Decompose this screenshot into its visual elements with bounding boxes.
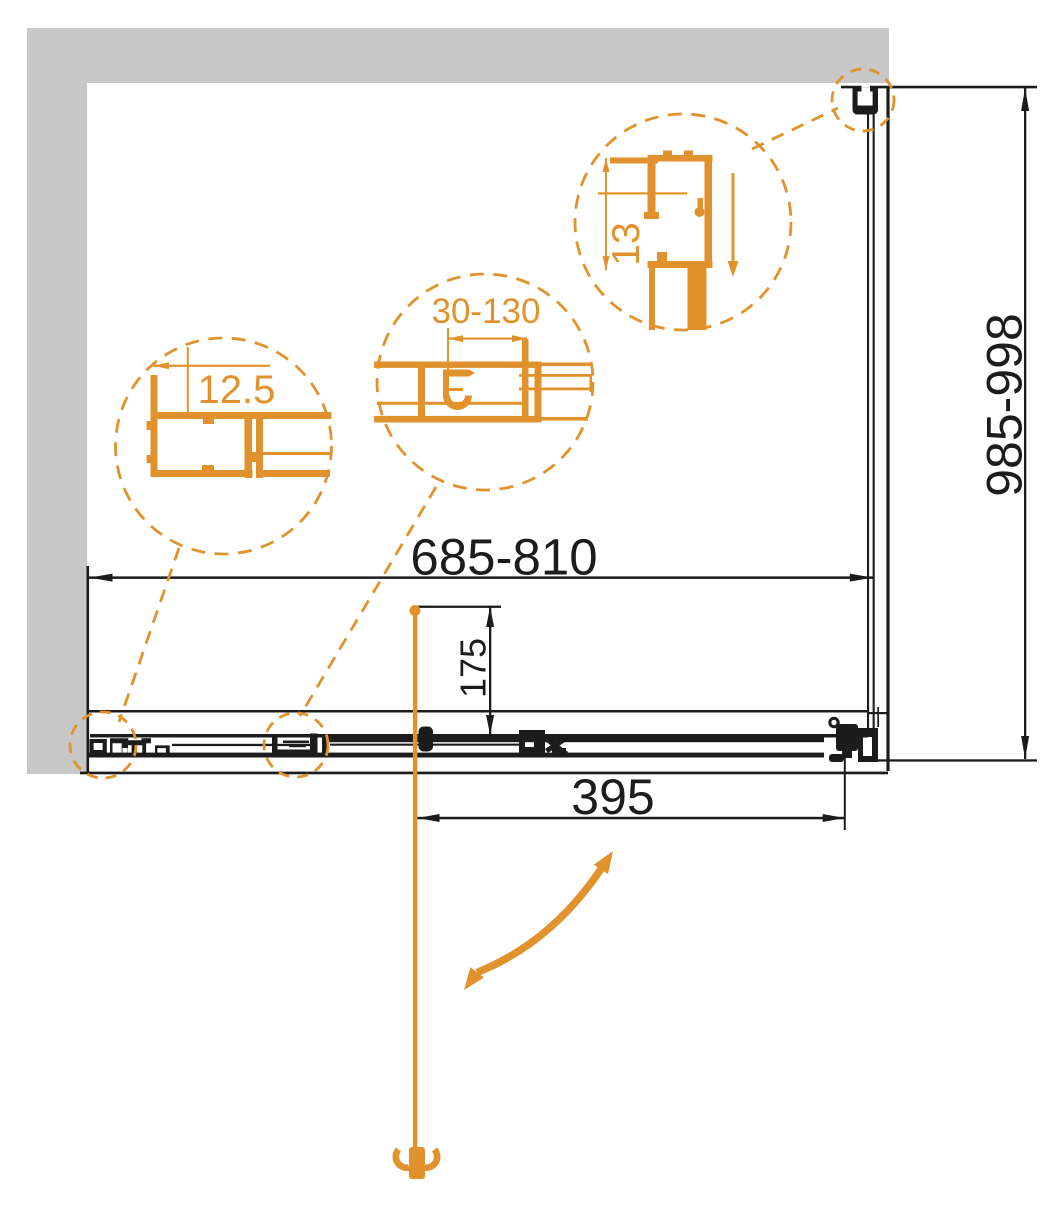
svg-text:985-998: 985-998	[977, 313, 1033, 497]
svg-text:13: 13	[605, 222, 648, 265]
svg-text:685-810: 685-810	[410, 529, 597, 586]
svg-text:30-130: 30-130	[432, 292, 541, 331]
svg-text:12.5: 12.5	[198, 368, 276, 412]
svg-text:175: 175	[453, 638, 494, 698]
svg-text:395: 395	[571, 769, 654, 825]
